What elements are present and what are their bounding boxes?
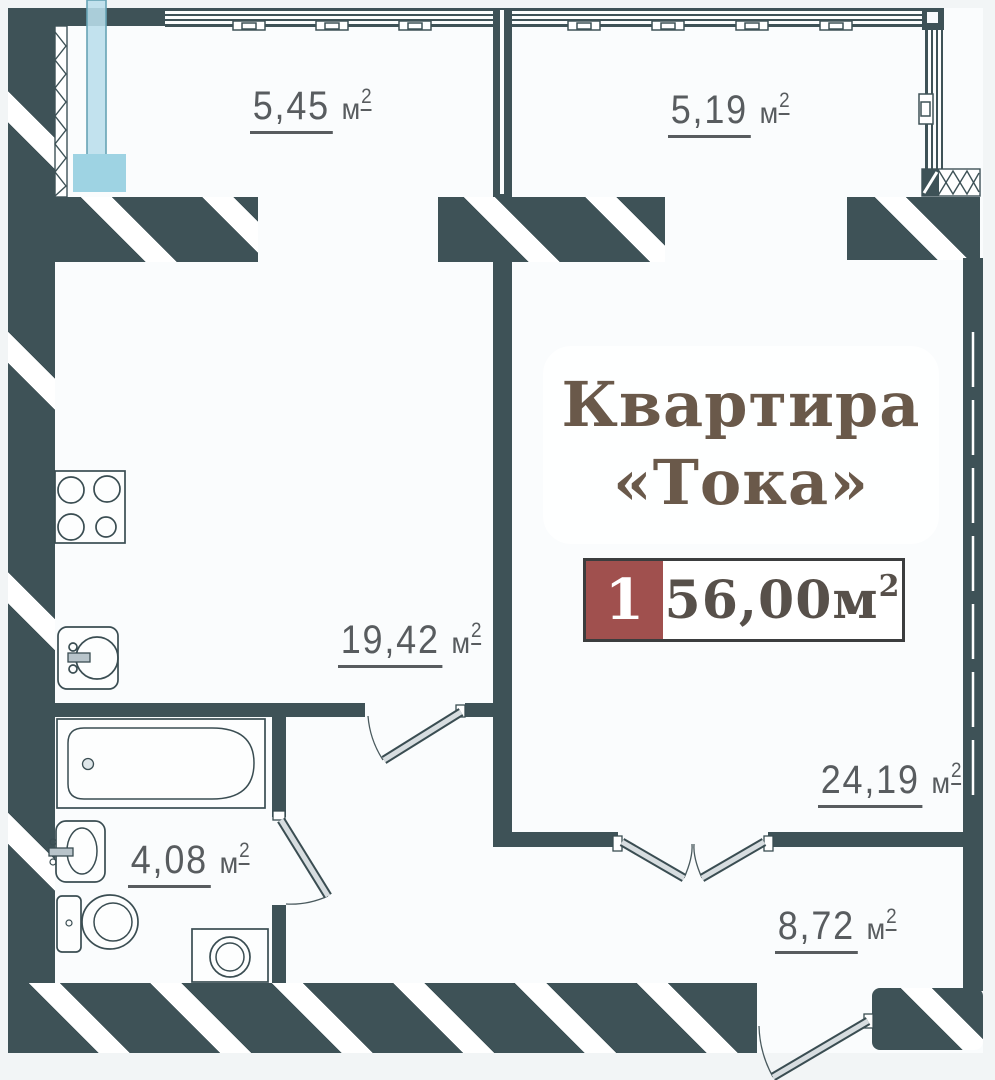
area-label-balcony-left: 5,45 м 2 [250,86,372,134]
wall-block-balcony-left [55,197,258,262]
title-line1: Квартира [543,366,939,444]
window-band-balcony-right [512,8,922,27]
area-value: 24,19 [818,760,922,808]
area-unit: м [867,906,886,945]
area-sup: 2 [951,760,962,785]
area-label-bedroom: 24,19 м 2 [818,760,961,808]
wall-bedroom-south-right [768,832,965,847]
area-value: 19,42 [338,620,442,668]
area-sup: 2 [779,90,790,115]
area-sup: 2 [361,86,372,111]
area-unit: м [931,760,950,799]
wall-bottom-right-block [872,988,983,1050]
area-label-kitchen-living: 19,42 м 2 [338,620,481,668]
window-band-right-side [925,30,943,170]
wall-bathroom-east-lower [272,905,286,983]
area-value: 5,45 [250,86,333,134]
total-area-sup: 2 [879,569,901,604]
floor-plan: Квартира «Тока» 1 56,00м2 5,45 м 2 5,19 … [0,0,995,1080]
area-sup: 2 [471,620,482,645]
wall-living-south-stub [465,703,512,717]
wall-block-center [438,197,665,262]
wall-central [493,262,512,847]
area-unit: м [342,86,361,125]
total-area-unit: м [832,570,878,631]
wall-bedroom-south-left [512,832,618,847]
area-value: 5,19 [668,90,751,138]
room-count-badge: 1 [586,561,663,639]
wall-bottom-exterior [8,983,757,1053]
wall-top-left-header [8,8,165,26]
area-value: 4,08 [128,840,211,888]
area-unit: м [451,620,470,659]
total-area: 56,00м2 [663,561,902,639]
area-unit: м [760,90,779,129]
wall-bathroom-east-upper [272,717,286,817]
area-sup: 2 [239,840,250,865]
area-label-hallway: 8,72 м 2 [775,906,897,954]
area-label-bathroom: 4,08 м 2 [128,840,250,888]
title-line2: «Тока» [543,444,939,522]
area-value: 8,72 [775,906,858,954]
area-label-balcony-right: 5,19 м 2 [668,90,790,138]
area-sup: 2 [886,906,897,931]
window-band-balcony-left [165,8,493,27]
corner-post-top-right [922,8,944,30]
wall-left-exterior [8,25,55,1053]
apartment-badge: 1 56,00м2 [583,558,905,642]
area-unit: м [220,840,239,879]
wall-block-top-right [847,197,980,260]
total-area-value: 56,00 [665,570,833,631]
wall-right-exterior [963,258,983,991]
balcony-divider-post [493,8,512,198]
wall-living-south [55,703,365,717]
apartment-title: Квартира «Тока» [543,366,939,522]
